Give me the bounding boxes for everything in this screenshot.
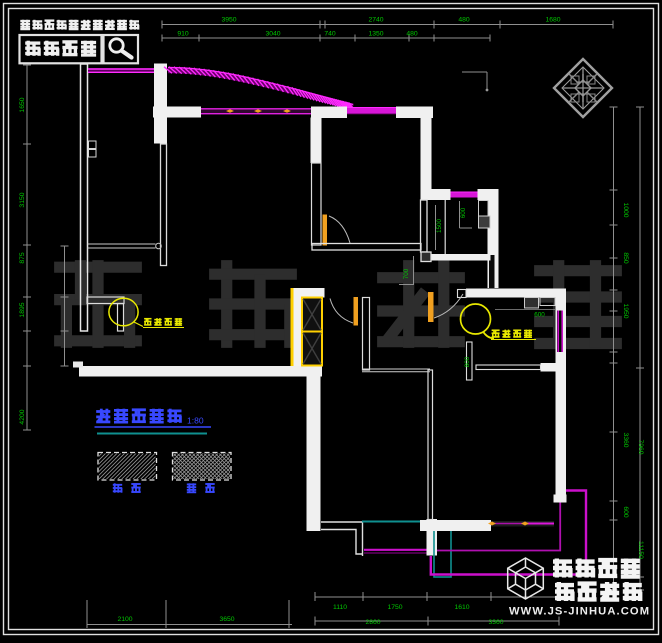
- svg-text:1110: 1110: [333, 604, 347, 611]
- svg-text:3360: 3360: [488, 619, 503, 626]
- svg-text:4200: 4200: [19, 409, 26, 424]
- svg-text:3360: 3360: [622, 432, 629, 447]
- svg-text:1350: 1350: [368, 31, 383, 38]
- svg-text:1610: 1610: [454, 604, 469, 611]
- svg-text:1895: 1895: [19, 302, 26, 317]
- svg-text:850: 850: [622, 252, 629, 264]
- svg-text:740: 740: [324, 31, 336, 38]
- svg-text:1680: 1680: [545, 17, 560, 24]
- svg-text:3950: 3950: [221, 17, 236, 24]
- svg-text:600: 600: [534, 312, 545, 319]
- svg-text:480: 480: [406, 31, 418, 38]
- svg-text:3150: 3150: [19, 192, 26, 207]
- svg-text:WWW.JS-JINHUA.COM: WWW.JS-JINHUA.COM: [509, 606, 650, 618]
- svg-text:1750: 1750: [387, 604, 402, 611]
- svg-text:600: 600: [622, 506, 629, 518]
- svg-text:11150: 11150: [637, 541, 644, 559]
- svg-text:2740: 2740: [368, 17, 383, 24]
- svg-text:3650: 3650: [219, 616, 234, 623]
- svg-text:700: 700: [403, 268, 410, 279]
- svg-text:2100: 2100: [117, 616, 132, 623]
- svg-text:800: 800: [464, 356, 471, 367]
- svg-text:1500: 1500: [436, 219, 443, 234]
- svg-text:910: 910: [177, 31, 189, 38]
- svg-text:1650: 1650: [19, 97, 26, 112]
- svg-text:3040: 3040: [265, 31, 280, 38]
- svg-text:1000: 1000: [622, 202, 629, 217]
- svg-text:1:80: 1:80: [187, 416, 204, 426]
- svg-text:875: 875: [19, 252, 26, 264]
- svg-text:7960: 7960: [637, 439, 644, 454]
- svg-text:1950: 1950: [622, 303, 629, 318]
- svg-text:600: 600: [460, 207, 467, 218]
- svg-text:480: 480: [458, 17, 470, 24]
- svg-text:2860: 2860: [365, 619, 380, 626]
